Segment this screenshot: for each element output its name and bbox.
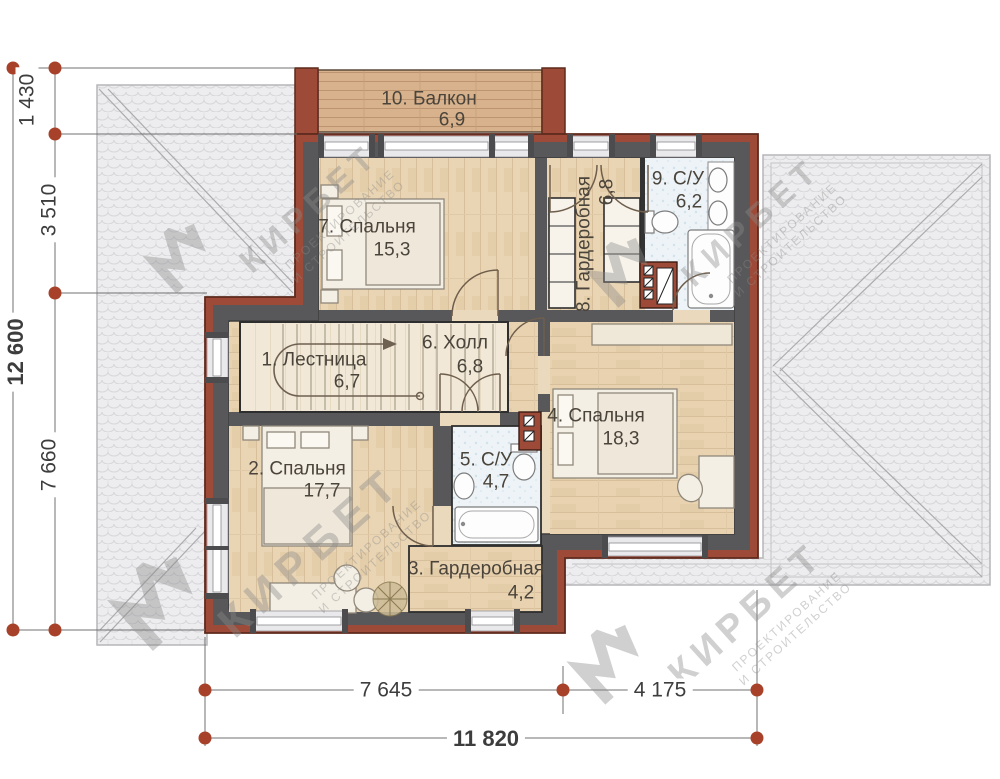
room-label-bedroom4-name: 4. Спальня [547, 407, 644, 426]
room-label-stairs-name: 1. Лестница [262, 351, 367, 370]
dim-left-7660: 7 660 [38, 433, 61, 498]
room-label-hall-area: 6,8 [457, 358, 483, 377]
room-label-wardrobe8-area: 6,8 [598, 179, 617, 205]
room-label-bedroom2-name: 2. Спальня [248, 460, 345, 479]
dim-left-1430: 1 430 [16, 68, 39, 133]
room-label-hall-name: 6. Холл [422, 334, 488, 353]
dim-bottom-7645: 7 645 [354, 679, 419, 702]
plant [373, 582, 407, 616]
dim-bottom-4175: 4 175 [628, 679, 693, 702]
floor-plan-canvas: КИРБЕТ ПРОЕКТИРОВАНИЕ И СТРОИТЕЛЬСТВО КИ… [0, 0, 1000, 779]
room-label-balcony-name: 10. Балкон [381, 90, 476, 109]
dim-bottom-total-11820: 11 820 [447, 727, 525, 751]
room-label-bathroom5-name: 5. С/У [460, 451, 512, 470]
room-label-stairs-area: 6,7 [334, 373, 360, 392]
room-label-bathroom5-area: 4,7 [483, 473, 509, 492]
dim-left-total-12600: 12 600 [4, 312, 28, 391]
floor-plan-drawing [0, 0, 1000, 779]
room-label-bedroom7-area: 15,3 [374, 241, 411, 260]
room-label-bathroom9-name: 9. С/У [652, 170, 704, 189]
room-label-wardrobe3-area: 4,2 [508, 584, 534, 603]
room-label-wardrobe8-name: 8. Гардеробная [575, 176, 594, 312]
room-label-bedroom4-area: 18,3 [603, 430, 640, 449]
room-label-bathroom9-area: 6,2 [676, 193, 702, 212]
dim-left-3510: 3 510 [38, 178, 61, 243]
room-label-balcony-area: 6,9 [439, 111, 465, 130]
room-label-bedroom7-name: 7. Спальня [318, 218, 415, 237]
room-label-wardrobe3-name: 3. Гардеробная [408, 560, 544, 579]
room-label-bedroom2-area: 17,7 [304, 482, 341, 501]
